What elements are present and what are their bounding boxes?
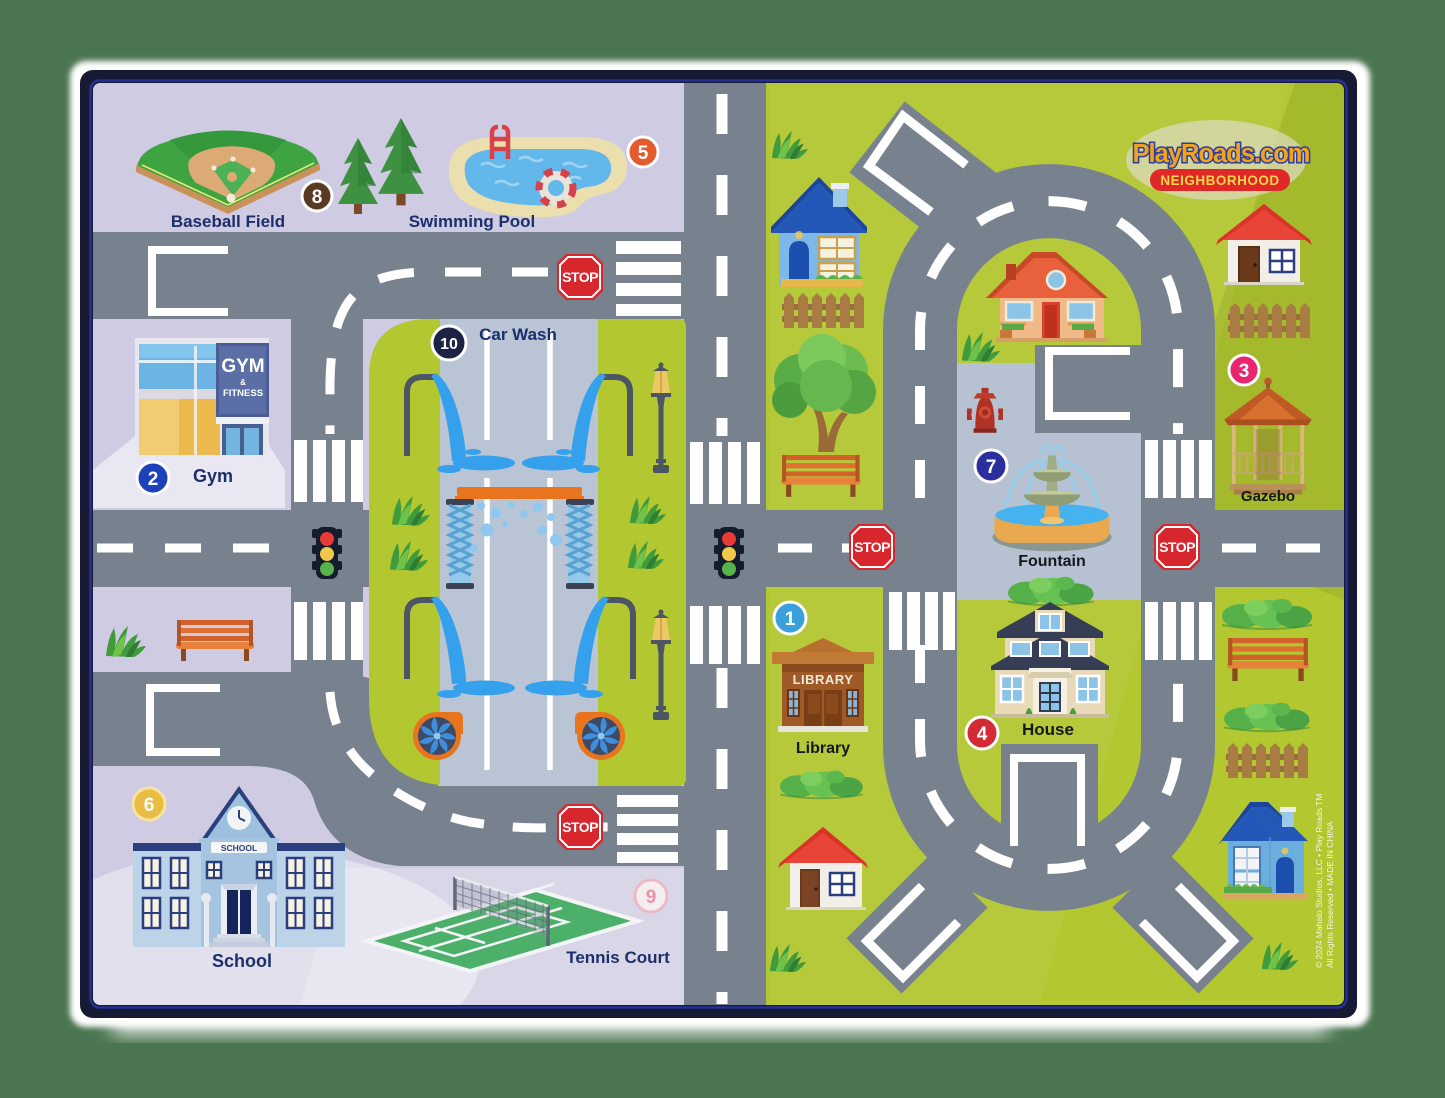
svg-text:NEIGHBORHOOD: NEIGHBORHOOD xyxy=(1160,173,1279,188)
svg-text:School: School xyxy=(212,951,272,971)
svg-text:Gazebo: Gazebo xyxy=(1241,488,1295,505)
svg-text:© 2024 Mahalo Studios, LLC • P: © 2024 Mahalo Studios, LLC • Play Roads … xyxy=(1314,794,1324,968)
svg-text:8: 8 xyxy=(312,187,323,208)
svg-text:6: 6 xyxy=(144,795,155,816)
svg-text:4: 4 xyxy=(977,724,988,745)
svg-text:Car Wash: Car Wash xyxy=(479,325,557,344)
svg-text:Gym: Gym xyxy=(193,466,233,486)
svg-text:Library: Library xyxy=(796,740,850,757)
svg-text:9: 9 xyxy=(646,887,657,908)
svg-text:Baseball Field: Baseball Field xyxy=(171,212,285,231)
svg-text:LIBRARY: LIBRARY xyxy=(793,672,854,687)
svg-text:2: 2 xyxy=(148,469,159,490)
svg-text:&: & xyxy=(240,378,246,387)
svg-text:FITNESS: FITNESS xyxy=(223,388,263,399)
svg-text:1: 1 xyxy=(785,609,796,630)
svg-text:Swimming Pool: Swimming Pool xyxy=(409,212,536,231)
svg-text:3: 3 xyxy=(1239,361,1250,382)
svg-text:Tennis Court: Tennis Court xyxy=(566,948,670,967)
svg-text:GYM: GYM xyxy=(221,356,264,377)
svg-text:10: 10 xyxy=(440,336,458,353)
svg-text:5: 5 xyxy=(638,143,649,164)
svg-text:7: 7 xyxy=(986,457,997,478)
svg-text:All Rights Reserved • MADE IN: All Rights Reserved • MADE IN CHINA xyxy=(1325,821,1335,968)
svg-text:House: House xyxy=(1022,720,1074,739)
svg-text:SCHOOL: SCHOOL xyxy=(221,843,257,853)
svg-text:PlayRoads.com: PlayRoads.com xyxy=(1133,140,1310,168)
svg-text:Fountain: Fountain xyxy=(1018,553,1086,570)
